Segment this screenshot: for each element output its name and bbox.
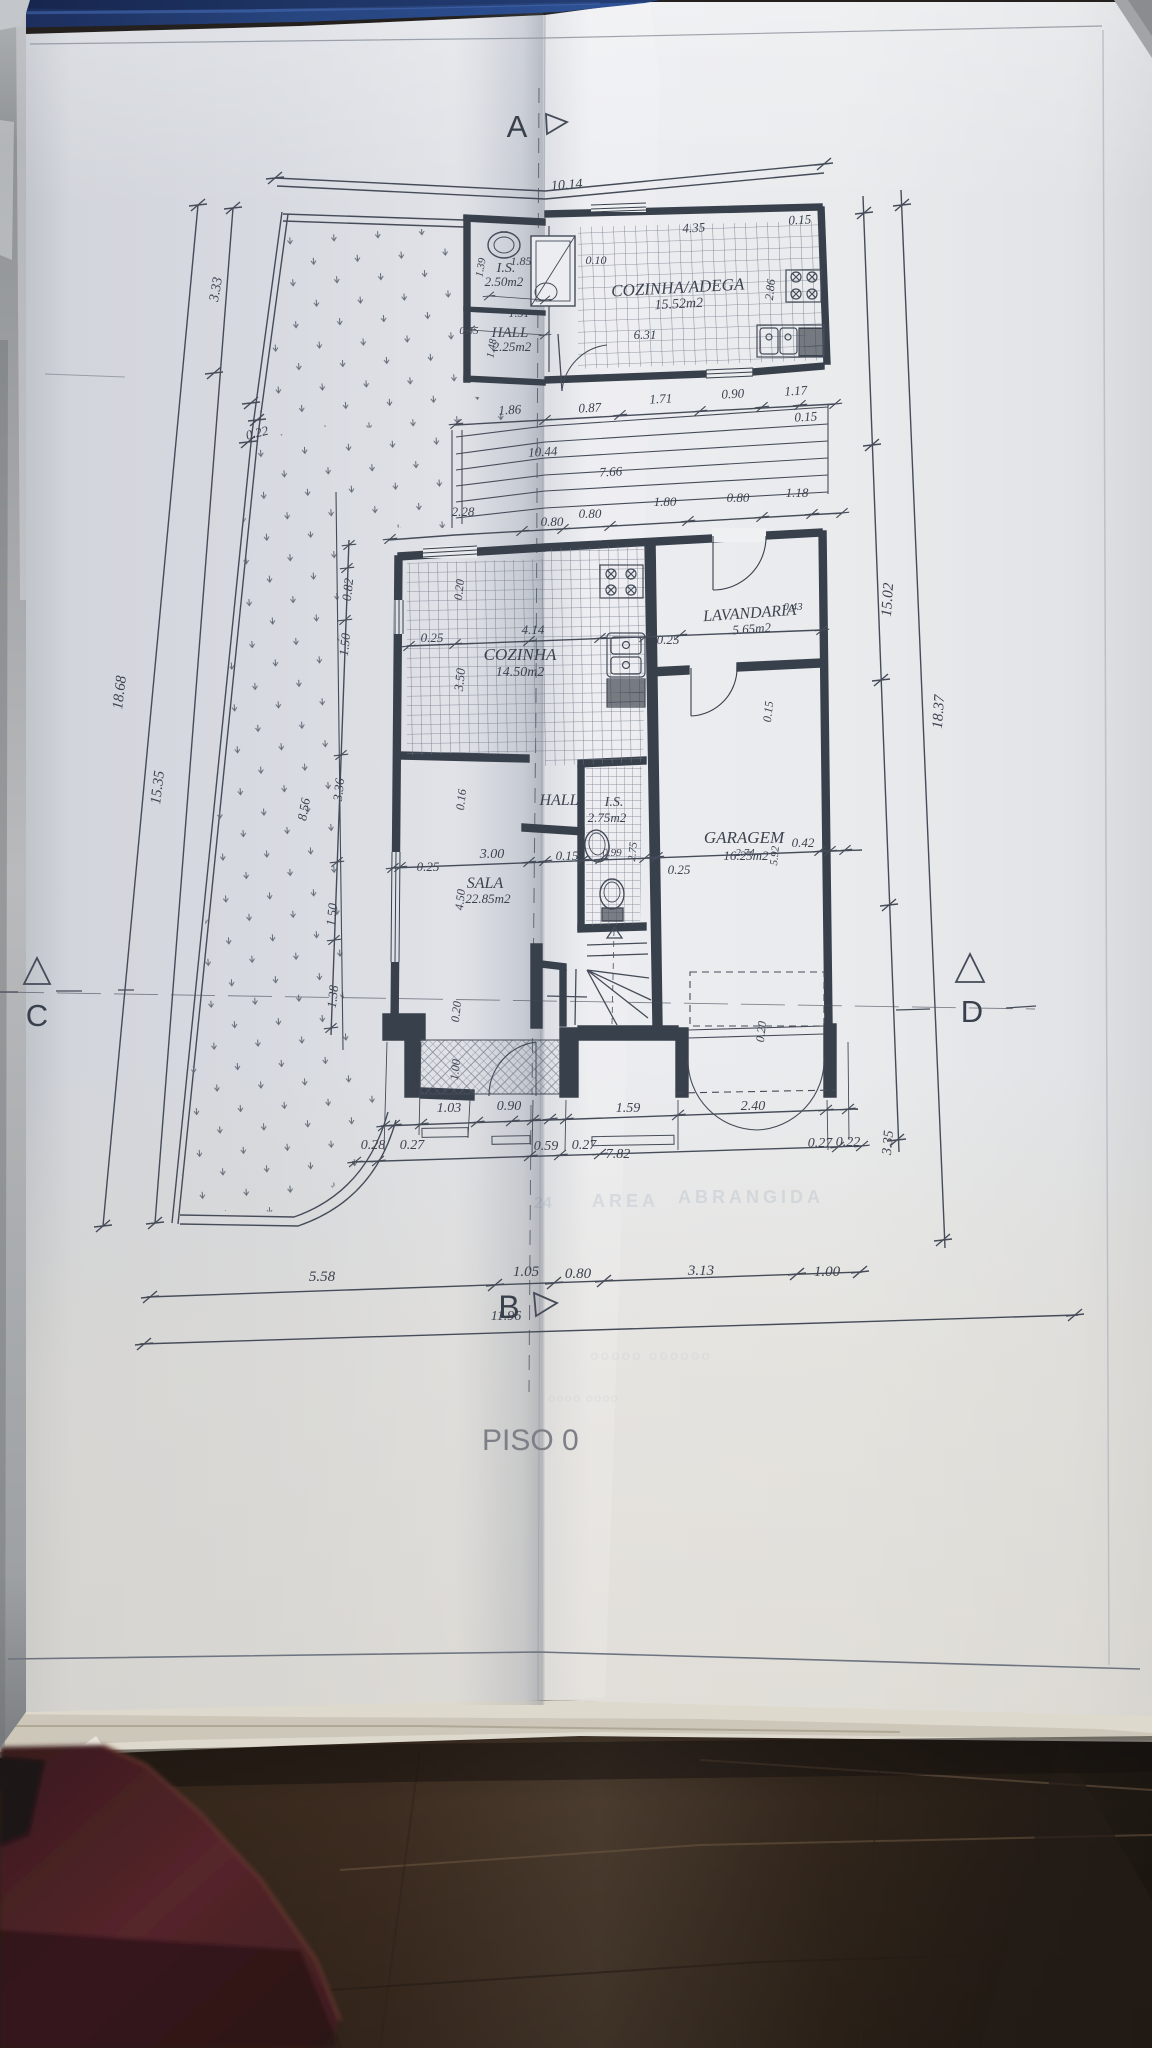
svg-text:18.37: 18.37 [930, 693, 948, 729]
svg-text:0.10: 0.10 [586, 253, 607, 267]
svg-text:0.27: 0.27 [808, 1136, 834, 1151]
svg-text:10.44: 10.44 [528, 443, 558, 460]
svg-text:15.52m2: 15.52m2 [654, 296, 703, 314]
svg-text:0.82: 0.82 [339, 577, 356, 602]
svg-text:10.14: 10.14 [551, 177, 583, 194]
svg-text:2.28: 2.28 [452, 504, 475, 519]
svg-text:0.16: 0.16 [453, 788, 469, 810]
svg-text:22.85m2: 22.85m2 [465, 891, 511, 906]
svg-text:0.25: 0.25 [668, 862, 691, 877]
svg-text:0.90: 0.90 [721, 385, 745, 401]
svg-text:5.58: 5.58 [309, 1269, 336, 1285]
svg-text:2.86: 2.86 [762, 278, 778, 300]
svg-text:I.S.: I.S. [604, 795, 624, 810]
svg-text:A: A [507, 109, 528, 144]
svg-text:D: D [961, 994, 983, 1029]
svg-text:1.50: 1.50 [323, 902, 340, 927]
svg-text:0.80: 0.80 [579, 506, 602, 521]
svg-text:3.50: 3.50 [451, 667, 468, 693]
svg-text:C: C [26, 998, 48, 1033]
svg-text:7.66: 7.66 [599, 463, 623, 479]
svg-text:2.74: 2.74 [735, 847, 755, 859]
svg-text:1.86: 1.86 [498, 401, 522, 417]
svg-text:ABRANGIDA: ABRANGIDA [678, 1187, 824, 1207]
svg-text:PISO 0: PISO 0 [482, 1424, 579, 1457]
svg-text:0.80: 0.80 [727, 490, 750, 505]
svg-text:0.42: 0.42 [792, 835, 815, 850]
svg-text:1.00: 1.00 [814, 1264, 841, 1280]
svg-text:0.25: 0.25 [657, 632, 680, 647]
svg-text:0.25: 0.25 [417, 859, 440, 874]
svg-text:0.20: 0.20 [448, 1000, 464, 1022]
svg-text:GARAGEM: GARAGEM [704, 828, 785, 847]
svg-text:4.35: 4.35 [682, 219, 706, 235]
svg-text:0.15: 0.15 [794, 408, 818, 424]
svg-text:0.80: 0.80 [565, 1266, 592, 1282]
svg-text:0.80: 0.80 [541, 514, 564, 529]
svg-text:0.87: 0.87 [578, 399, 602, 415]
svg-text:2.40: 2.40 [741, 1099, 766, 1114]
svg-text:1.80: 1.80 [654, 494, 677, 509]
svg-text:0.27: 0.27 [400, 1138, 426, 1153]
svg-text:4.50: 4.50 [452, 888, 468, 910]
svg-text:24: 24 [534, 1195, 552, 1212]
svg-text:1.85: 1.85 [511, 254, 532, 268]
svg-text:0.99: 0.99 [602, 847, 622, 859]
svg-text:COZINHA: COZINHA [484, 645, 557, 664]
svg-text:0.25: 0.25 [421, 630, 444, 645]
svg-text:5.65m2: 5.65m2 [732, 620, 772, 638]
svg-text:1.03: 1.03 [437, 1101, 462, 1116]
svg-text:AREA: AREA [592, 1191, 659, 1211]
svg-text:1.71: 1.71 [649, 390, 673, 406]
svg-text:0.28: 0.28 [361, 1138, 386, 1153]
svg-text:0.43: 0.43 [783, 601, 803, 613]
svg-text:5.92: 5.92 [768, 845, 782, 866]
svg-text:B: B [498, 1289, 519, 1325]
svg-text:14.50m2: 14.50m2 [496, 665, 545, 680]
svg-text:3.13: 3.13 [687, 1263, 714, 1279]
svg-text:SALA: SALA [467, 875, 504, 892]
svg-text:2.75m2: 2.75m2 [588, 810, 627, 825]
svg-text:1.59: 1.59 [616, 1101, 641, 1116]
svg-text:15.02: 15.02 [879, 582, 897, 617]
svg-text:1.51: 1.51 [509, 306, 530, 320]
svg-text:ooooo oooooo: ooooo oooooo [590, 1347, 712, 1363]
svg-text:0.59: 0.59 [534, 1139, 559, 1154]
svg-text:1.00: 1.00 [447, 1058, 463, 1080]
svg-text:4.14: 4.14 [522, 622, 545, 637]
svg-text:7.82: 7.82 [606, 1147, 631, 1162]
svg-text:0.15: 0.15 [760, 700, 776, 722]
svg-text:0.20: 0.20 [753, 1020, 769, 1042]
svg-text:0.22: 0.22 [836, 1135, 861, 1150]
svg-text:2.50m2: 2.50m2 [485, 274, 524, 289]
svg-text:oooo oooo: oooo oooo [548, 1391, 619, 1405]
svg-text:1.18: 1.18 [786, 485, 809, 500]
svg-text:0.90: 0.90 [497, 1099, 522, 1114]
svg-text:0.15: 0.15 [788, 211, 812, 227]
svg-text:1.05: 1.05 [513, 1264, 540, 1280]
svg-text:1.50: 1.50 [336, 632, 353, 657]
svg-text:1.17: 1.17 [784, 382, 808, 398]
svg-text:0.20: 0.20 [451, 578, 467, 600]
svg-text:HALL: HALL [538, 792, 578, 809]
svg-text:6.31: 6.31 [634, 327, 657, 342]
svg-text:3.36: 3.36 [330, 777, 347, 803]
svg-text:3.35: 3.35 [880, 1130, 897, 1157]
svg-text:0.15: 0.15 [556, 848, 579, 863]
svg-text:3.00: 3.00 [479, 847, 505, 862]
